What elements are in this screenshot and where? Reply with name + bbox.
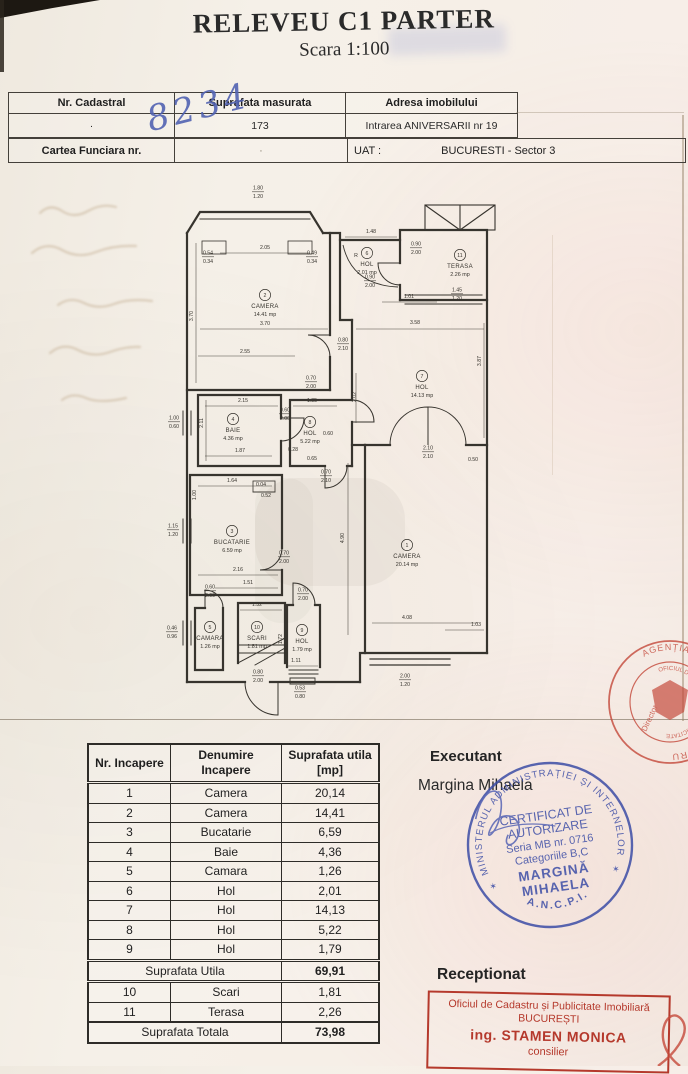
svg-text:SCARI: SCARI	[247, 636, 267, 642]
svg-text:2.10: 2.10	[423, 446, 433, 452]
svg-text:5: 5	[209, 625, 212, 631]
dimension-label: 1.00	[192, 490, 198, 500]
room-label: 8HOL5.22 mp	[300, 416, 319, 445]
dimension-label: 0.802.00	[252, 670, 264, 685]
svg-text:1.87: 1.87	[235, 448, 245, 454]
svg-text:1.01: 1.01	[404, 294, 414, 300]
dimension-label: 2.05	[260, 245, 270, 251]
dimension-label: 1.51	[243, 580, 253, 586]
dimension-label: 0.65	[307, 456, 317, 462]
area-table-col-header: DenumireIncapere	[171, 744, 282, 783]
table-row: 5Camara1,26	[88, 862, 379, 882]
svg-text:1.79 mp: 1.79 mp	[292, 647, 311, 653]
table-cell: 4,36	[282, 842, 380, 862]
svg-text:14.41 mp: 14.41 mp	[254, 312, 276, 318]
svg-text:0.34: 0.34	[203, 259, 213, 265]
svg-text:10: 10	[254, 625, 260, 631]
svg-text:0.70: 0.70	[306, 376, 316, 382]
svg-text:1.00: 1.00	[192, 490, 198, 500]
table-cell: Hol	[171, 920, 282, 940]
svg-text:2.00: 2.00	[365, 283, 375, 289]
svg-text:1.11: 1.11	[291, 658, 301, 664]
table-cell: 14,13	[282, 901, 380, 921]
svg-text:2.02: 2.02	[352, 392, 358, 402]
svg-text:0.60: 0.60	[169, 424, 179, 430]
dimension-label: 0.28	[288, 447, 298, 453]
svg-text:✶: ✶	[489, 881, 498, 892]
svg-text:0.80: 0.80	[253, 670, 263, 676]
svg-text:CAMERA: CAMERA	[393, 554, 420, 560]
room-label: 6HOL2.01 mp	[357, 247, 376, 276]
document-title-block: RELEVEU C1 PARTER Scara 1:100	[0, 0, 688, 67]
svg-text:1.48: 1.48	[366, 229, 376, 235]
watermark	[255, 478, 405, 623]
svg-text:3.87: 3.87	[477, 356, 483, 366]
svg-text:4.08: 4.08	[402, 615, 412, 621]
svg-text:11: 11	[457, 253, 462, 259]
svg-text:1.32: 1.32	[252, 602, 262, 608]
ocpi-round-stamp: AGENȚIA NAȚIONALĂ DE CADASTRU OFICIUL DE…	[600, 632, 688, 772]
room-label: 7HOL14.13 mp	[411, 370, 433, 399]
svg-text:2.00: 2.00	[400, 674, 410, 680]
svg-text:1.20: 1.20	[253, 194, 263, 200]
room-label: 2CAMERA14.41 mp	[251, 289, 278, 318]
svg-text:1.20: 1.20	[452, 296, 462, 302]
dimension-label: 4.90	[340, 533, 346, 543]
room-label: 10SCARI1.81 mp	[247, 621, 267, 650]
dimension-label: 2.001.20	[399, 674, 411, 689]
table-cell: 9	[88, 940, 171, 961]
table-cell: 73,98	[282, 1022, 380, 1043]
table-cell: Terasa	[171, 1002, 282, 1022]
table-cell: 14,41	[282, 803, 380, 823]
svg-text:Director: Director	[640, 703, 660, 732]
table-row: 2Camera14,41	[88, 803, 379, 823]
table-row: 8Hol5,22	[88, 920, 379, 940]
dimension-label: 2.02	[352, 392, 358, 402]
dimension-label: R	[354, 253, 358, 259]
svg-text:1.20: 1.20	[400, 682, 410, 688]
svg-text:1.20: 1.20	[168, 532, 178, 538]
area-table-header: Nr. IncapereDenumireIncapereSuprafata ut…	[88, 744, 379, 783]
svg-text:6: 6	[366, 251, 369, 257]
dimension-label: 1.72	[278, 634, 284, 644]
dimension-label: 0.902.00	[364, 275, 376, 290]
table-cell: 8	[88, 920, 171, 940]
svg-text:4: 4	[232, 417, 235, 423]
svg-text:0.49: 0.49	[307, 251, 317, 257]
dimension-label: 1.64	[227, 478, 237, 484]
dimension-label: 0.60	[323, 431, 333, 437]
dimension-label: 3.70	[260, 321, 270, 327]
svg-text:1.80: 1.80	[253, 186, 263, 192]
dimension-label: 4.08	[402, 615, 412, 621]
dimension-label: 2.11	[199, 418, 205, 428]
svg-text:3.70: 3.70	[260, 321, 270, 327]
dimension-label: 0.50	[468, 457, 478, 463]
table-cell: Scari	[171, 982, 282, 1003]
table-cell: Camara	[171, 862, 282, 882]
faint-bleed-line	[552, 235, 553, 475]
svg-text:0.90: 0.90	[365, 275, 375, 281]
table-cell: Hol	[171, 881, 282, 901]
dimension-label: 0.702.10	[320, 470, 332, 485]
table-cell: 1,26	[282, 862, 380, 882]
svg-text:HOL: HOL	[295, 639, 309, 645]
svg-text:✶: ✶	[612, 864, 621, 875]
dimension-label: 0.702.00	[305, 376, 317, 391]
table-row: 6Hol2,01	[88, 881, 379, 901]
svg-text:1.64: 1.64	[227, 478, 237, 484]
svg-text:2.00: 2.00	[279, 559, 289, 565]
svg-text:2.55: 2.55	[240, 349, 250, 355]
svg-text:4.36 mp: 4.36 mp	[223, 436, 242, 442]
svg-text:2.10: 2.10	[338, 346, 348, 352]
svg-text:2.00: 2.00	[298, 596, 308, 602]
uat-cell: UAT : BUCURESTI - Sector 3	[348, 139, 685, 162]
table-cell: Suprafata Totala	[88, 1022, 282, 1043]
svg-text:0.46: 0.46	[167, 626, 177, 632]
area-table-col-header: Suprafata utila[mp]	[282, 744, 380, 783]
svg-text:2.26 mp: 2.26 mp	[450, 272, 469, 278]
svg-text:1.81 mp: 1.81 mp	[247, 644, 266, 650]
dimension-label: 1.000.60	[168, 416, 180, 431]
dimension-label: 0.902.00	[410, 242, 422, 257]
area-table: Nr. IncapereDenumireIncapereSuprafata ut…	[87, 743, 380, 1044]
svg-text:0.80: 0.80	[338, 338, 348, 344]
dimension-label: 0.52	[261, 493, 271, 499]
table-cell: Baie	[171, 842, 282, 862]
svg-text:1.03: 1.03	[471, 622, 481, 628]
svg-text:0.50: 0.50	[468, 457, 478, 463]
svg-text:2.05: 2.05	[260, 245, 270, 251]
room-label: 11TERASA2.26 mp	[447, 249, 473, 278]
dimension-label: 0.490.34	[306, 251, 318, 266]
terasa-roof-hatch	[425, 205, 495, 230]
page-edge-line	[682, 115, 684, 721]
svg-text:0.52: 0.52	[261, 493, 271, 499]
table-row: 3Bucatarie6,59	[88, 823, 379, 843]
svg-text:2.00: 2.00	[280, 416, 290, 422]
svg-text:0.70: 0.70	[279, 551, 289, 557]
dimension-label: 1.87	[235, 448, 245, 454]
svg-text:14.13 mp: 14.13 mp	[411, 393, 433, 399]
dimension-label: 0.530.80	[294, 686, 306, 701]
svg-text:HOL: HOL	[303, 431, 317, 437]
svg-text:R: R	[354, 253, 358, 259]
table-row: 11Terasa2,26	[88, 1002, 379, 1022]
table-cell: 20,14	[282, 783, 380, 804]
table-cell: 7	[88, 901, 171, 921]
dimension-label: 2.102.10	[422, 446, 434, 461]
adresa-value: Intrarea ANIVERSARII nr 19	[346, 114, 517, 137]
svg-text:2.00: 2.00	[411, 250, 421, 256]
dimension-label: 0.460.96	[166, 626, 178, 641]
table-cell: Suprafata Utila	[88, 960, 282, 982]
red-signature-curve	[628, 998, 688, 1066]
table-row: 4Baie4,36	[88, 842, 379, 862]
svg-text:BAIE: BAIE	[226, 428, 241, 434]
dimension-label: 0.540.34	[202, 251, 214, 266]
table-row: 9Hol1,79	[88, 940, 379, 961]
dimension-label: 1.32	[252, 602, 262, 608]
svg-text:CAMARA: CAMARA	[196, 636, 223, 642]
room-label: 9HOL1.79 mp	[292, 624, 311, 653]
table-cell: Hol	[171, 901, 282, 921]
table-cell: 3	[88, 823, 171, 843]
floor-plan: 1CAMERA20.14 mp2CAMERA14.41 mp3BUCATARIE…	[160, 183, 548, 723]
svg-text:0.04: 0.04	[256, 482, 266, 488]
table-cell: 2,26	[282, 1002, 380, 1022]
stamp-emblem	[652, 680, 688, 720]
svg-text:5.22 mp: 5.22 mp	[300, 439, 319, 445]
svg-text:0.60: 0.60	[280, 408, 290, 414]
svg-text:8: 8	[309, 420, 312, 426]
executant-label: Executant	[430, 748, 502, 765]
dimension-label: 1.151.20	[167, 524, 179, 539]
room-label: 4BAIE4.36 mp	[223, 413, 242, 442]
room-label: 5CAMARA1.26 mp	[196, 621, 223, 650]
svg-text:BUCATARIE: BUCATARIE	[214, 540, 250, 546]
faint-extension-line	[516, 112, 684, 113]
dimension-label: 1.35	[307, 398, 317, 404]
carte-funciara-label: Cartea Funciara nr.	[9, 139, 175, 162]
dimension-label: 3.87	[477, 356, 483, 366]
table-cell: Hol	[171, 940, 282, 961]
svg-text:2.16: 2.16	[233, 567, 243, 573]
table-row: 1Camera20,14	[88, 783, 379, 804]
svg-text:1.72: 1.72	[278, 634, 284, 644]
table-cell: 2	[88, 803, 171, 823]
table-cell: Camera	[171, 803, 282, 823]
carte-funciara-table: Cartea Funciara nr. · UAT : BUCURESTI - …	[8, 138, 686, 163]
table-cell: 10	[88, 982, 171, 1003]
svg-text:0.70: 0.70	[321, 470, 331, 476]
dimension-label: 1.801.20	[252, 186, 264, 201]
dimension-label: 0.04	[256, 482, 266, 488]
svg-text:0.96: 0.96	[167, 634, 177, 640]
adresa-cell: Adresa imobilului Intrarea ANIVERSARII n…	[346, 93, 517, 137]
table-cell: 5,22	[282, 920, 380, 940]
table-row: 10Scari1,81	[88, 982, 379, 1003]
table-cell: 11	[88, 1002, 171, 1022]
svg-text:0.80: 0.80	[295, 694, 305, 700]
table-cell: 5	[88, 862, 171, 882]
svg-text:0.54: 0.54	[203, 251, 213, 257]
svg-text:0.34: 0.34	[307, 259, 317, 265]
svg-text:6.59 mp: 6.59 mp	[222, 548, 241, 554]
plan-walls	[183, 212, 487, 684]
svg-text:7: 7	[421, 374, 424, 380]
svg-text:0.70: 0.70	[298, 588, 308, 594]
svg-text:3.58: 3.58	[410, 320, 420, 326]
svg-text:0.53: 0.53	[295, 686, 305, 692]
svg-text:1.00: 1.00	[169, 416, 179, 422]
svg-text:0.60: 0.60	[205, 585, 215, 591]
svg-text:2: 2	[264, 293, 267, 299]
table-row: 7Hol14,13	[88, 901, 379, 921]
svg-text:HOL: HOL	[415, 385, 429, 391]
dimension-label: 3.58	[410, 320, 420, 326]
area-table-col-header: Nr. Incapere	[88, 744, 171, 783]
table-cell: 2,01	[282, 881, 380, 901]
dimension-label: 1.01	[404, 294, 414, 300]
carte-funciara-blank: ·	[175, 139, 348, 162]
svg-text:2.10: 2.10	[423, 454, 433, 460]
svg-text:1.45: 1.45	[452, 288, 462, 294]
receptionat-label: Receptionat	[437, 966, 526, 984]
table-cell: Camera	[171, 783, 282, 804]
svg-text:2.00: 2.00	[253, 678, 263, 684]
dimension-label: 0.802.10	[337, 338, 349, 353]
svg-text:3: 3	[231, 529, 234, 535]
table-cell: 69,91	[282, 960, 380, 982]
svg-text:HOL: HOL	[360, 262, 374, 268]
svg-text:20.14 mp: 20.14 mp	[396, 562, 418, 568]
table-row: Suprafata Utila69,91	[88, 960, 379, 982]
table-cell: 1,81	[282, 982, 380, 1003]
svg-text:2.10: 2.10	[321, 478, 331, 484]
svg-text:2.15: 2.15	[238, 398, 248, 404]
room-label: 3BUCATARIE6.59 mp	[214, 525, 250, 554]
svg-text:TERASA: TERASA	[447, 264, 473, 270]
svg-text:0.65: 0.65	[307, 456, 317, 462]
cadastral-header-table: Nr. Cadastral · Suprafata masurata 173 A…	[8, 92, 518, 138]
dimension-label: 3.70	[189, 311, 195, 321]
svg-text:4.90: 4.90	[340, 533, 346, 543]
table-cell: Bucatarie	[171, 823, 282, 843]
svg-text:1.15: 1.15	[168, 524, 178, 530]
svg-text:2.11: 2.11	[199, 418, 205, 428]
bleed-through-handwriting	[10, 195, 180, 425]
uat-label: UAT :	[354, 145, 381, 157]
svg-text:2.00: 2.00	[306, 384, 316, 390]
table-row: Suprafata Totala73,98	[88, 1022, 379, 1043]
dimension-label: 2.55	[240, 349, 250, 355]
uat-value: BUCURESTI - Sector 3	[441, 145, 555, 157]
svg-text:0.90: 0.90	[411, 242, 421, 248]
table-cell: 1,79	[282, 940, 380, 961]
svg-text:3.70: 3.70	[189, 311, 195, 321]
dimension-label: 1.11	[291, 658, 301, 664]
dimension-label: 1.48	[366, 229, 376, 235]
adresa-label: Adresa imobilului	[346, 93, 517, 114]
svg-text:1: 1	[406, 543, 409, 549]
ancpi-round-stamp: MINISTERUL ADMINISTRAȚIEI ȘI INTERNELOR …	[451, 746, 650, 945]
dimension-label: 1.03	[471, 622, 481, 628]
svg-text:2.00: 2.00	[205, 593, 215, 599]
table-cell: 6,59	[282, 823, 380, 843]
svg-text:0.60: 0.60	[323, 431, 333, 437]
dimension-label: 2.15	[238, 398, 248, 404]
dimension-label: 0.602.00	[204, 585, 216, 600]
dimension-label: 2.16	[233, 567, 243, 573]
svg-text:1.26 mp: 1.26 mp	[200, 644, 219, 650]
svg-text:0.28: 0.28	[288, 447, 298, 453]
svg-text:CAMERA: CAMERA	[251, 304, 278, 310]
table-cell: 4	[88, 842, 171, 862]
svg-text:9: 9	[301, 628, 304, 634]
table-cell: 1	[88, 783, 171, 804]
svg-text:1.35: 1.35	[307, 398, 317, 404]
table-cell: 6	[88, 881, 171, 901]
svg-text:1.51: 1.51	[243, 580, 253, 586]
